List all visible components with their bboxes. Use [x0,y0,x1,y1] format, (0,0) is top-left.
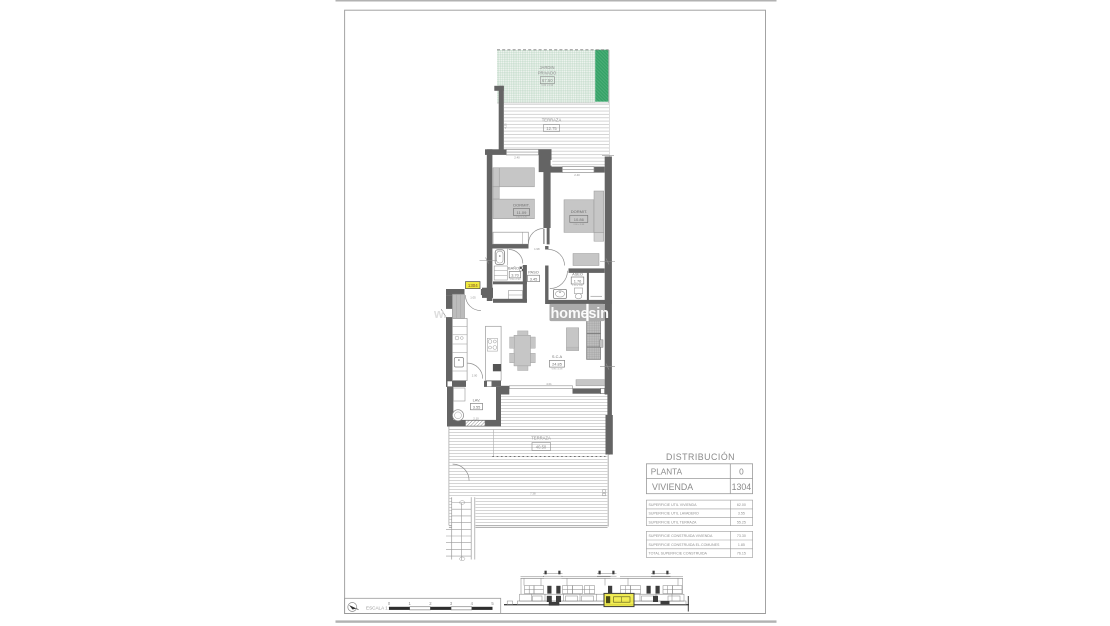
svg-text:1.76: 1.76 [574,279,582,284]
svg-text:DISTRIBUCIÓN: DISTRIBUCIÓN [666,452,735,462]
svg-text:1.98: 1.98 [534,247,540,251]
svg-text:ESCALA 1:: ESCALA 1: [366,606,389,611]
svg-text:2.00: 2.00 [472,373,478,377]
svg-text:DORMIT.: DORMIT. [571,209,587,214]
svg-text:76.15: 76.15 [737,552,746,556]
svg-text:4.01: 4.01 [546,382,552,386]
svg-text:24.85: 24.85 [552,362,562,367]
svg-text:0: 0 [739,468,744,477]
svg-text:2.40: 2.40 [574,173,580,177]
svg-text:w.: w. [433,307,447,321]
svg-text:SUPERFICIE UTIL LAVADERO: SUPERFICIE UTIL LAVADERO [649,512,699,516]
svg-text:9.80 x 6.90: 9.80 x 6.90 [541,84,553,87]
svg-text:1.05: 1.05 [470,295,476,299]
svg-text:homesin: homesin [551,306,609,322]
svg-text:1304: 1304 [468,283,478,288]
svg-text:VIVIENDA: VIVIENDA [652,482,693,492]
svg-text:3.55: 3.55 [738,512,745,516]
svg-text:ASEO: ASEO [572,272,583,277]
svg-text:2.10: 2.10 [473,416,479,420]
svg-text:4.25: 4.25 [504,123,508,129]
svg-text:SUPERFICIE CONSTRUIDA EL.COMUN: SUPERFICIE CONSTRUIDA EL.COMUNES [649,543,720,547]
svg-text:SUPERFICIE UTIL VIVIENDA: SUPERFICIE UTIL VIVIENDA [649,503,698,507]
svg-text:BAÑO: BAÑO [508,266,519,271]
svg-text:S.C.A: S.C.A [552,354,563,359]
svg-text:1.55 x 2.40: 1.55 x 2.40 [510,279,522,281]
svg-text:PLANTA: PLANTA [651,468,683,477]
svg-text:TERRAZA: TERRAZA [542,118,562,123]
svg-text:LAV.: LAV. [473,398,481,403]
svg-text:62.00: 62.00 [737,503,746,507]
svg-text:12.75: 12.75 [546,126,557,131]
svg-text:TOTAL SUPERFICIE CONSTRUIDA: TOTAL SUPERFICIE CONSTRUIDA [649,552,708,556]
svg-text:2.80 x 3.88: 2.80 x 3.88 [573,224,585,226]
svg-text:PRIVADO: PRIVADO [538,70,557,75]
svg-text:DORMIT.: DORMIT. [513,203,529,208]
svg-text:5.95 x 4.18: 5.95 x 4.18 [552,368,564,370]
svg-text:11.09: 11.09 [517,210,527,215]
svg-text:SUPERFICIE CONSTRUIDA VIVIENDA: SUPERFICIE CONSTRUIDA VIVIENDA [649,534,714,538]
svg-text:73.30: 73.30 [737,534,746,538]
svg-text:2.60 x 4.20: 2.60 x 4.20 [516,217,528,219]
svg-text:3.70: 3.70 [511,273,519,278]
svg-text:PASO: PASO [528,269,539,274]
svg-text:JARDIN: JARDIN [539,65,554,70]
svg-text:7.38: 7.38 [530,492,536,496]
svg-text:2.40: 2.40 [514,155,520,159]
svg-text:1.10 x 1.60: 1.10 x 1.60 [572,285,584,287]
svg-text:3.55: 3.55 [473,405,481,410]
svg-text:40.50: 40.50 [536,444,547,449]
svg-text:1.85: 1.85 [738,543,745,547]
svg-text:67.50: 67.50 [542,78,553,83]
svg-text:10.86: 10.86 [574,217,585,222]
svg-text:55.25: 55.25 [737,520,746,524]
svg-text:TERRAZA: TERRAZA [531,436,551,441]
svg-text:3.45: 3.45 [530,276,538,281]
svg-text:1304: 1304 [732,482,752,492]
svg-text:SUPERFICIE UTIL TERRAZA: SUPERFICIE UTIL TERRAZA [649,520,698,524]
